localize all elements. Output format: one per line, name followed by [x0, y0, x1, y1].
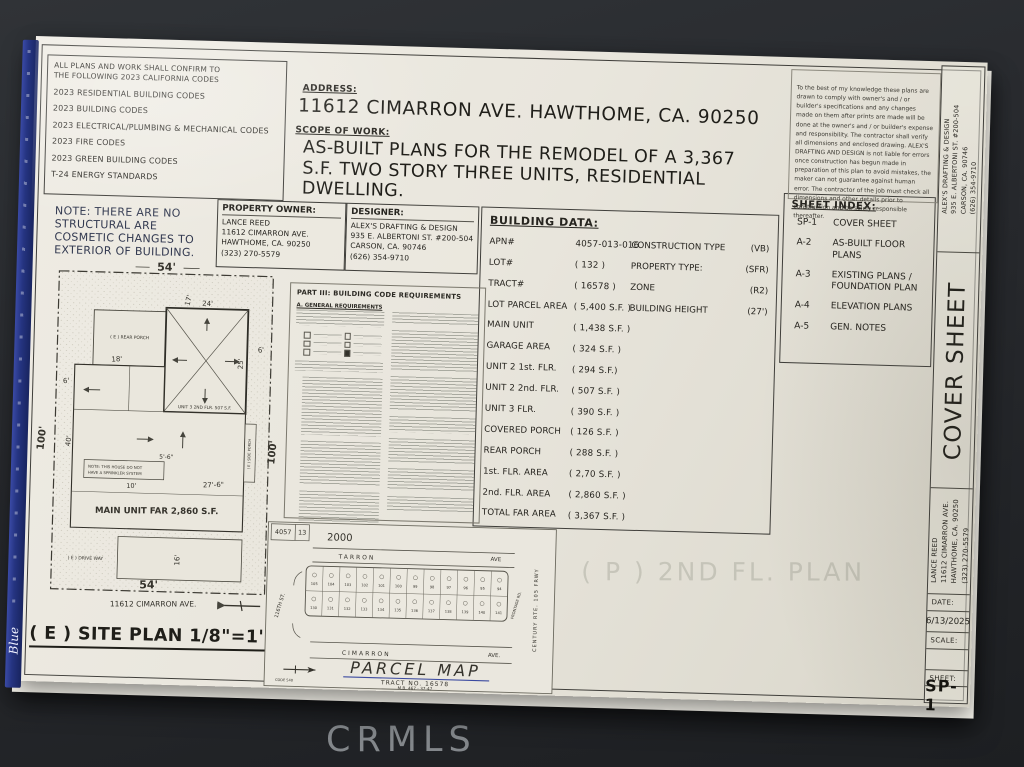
fine-print-lines	[387, 496, 473, 512]
code-item: 2023 RESIDENTIAL BUILDING CODES	[53, 87, 279, 102]
site-plan-drawing: 54' 17' ( E ) REAR PORCH 18' 24' 25' UNI…	[28, 258, 286, 617]
fine-print-column	[291, 309, 385, 513]
bleed-through-text: ( P ) 2ND FL. PLAN	[581, 557, 865, 586]
sheet-index-item: A-5GEN. NOTES	[788, 321, 924, 336]
photo-background: CRMLS Blue ALL PLANS AND WORK SHALL CONF…	[0, 0, 1024, 767]
checkbox-checked	[344, 350, 351, 357]
designer-box: DESIGNER: ALEX'S DRAFTING & DESIGN 935 E…	[345, 203, 480, 275]
svg-text:94: 94	[497, 587, 502, 591]
designer-disclaimer-text: To the best of my knowledge these plans …	[788, 69, 942, 203]
building-data-title: BUILDING DATA:	[490, 214, 770, 235]
building-code-requirements-box: PART III: BUILDING CODE REQUIREMENTS A. …	[284, 282, 487, 523]
svg-text:102: 102	[361, 583, 368, 587]
fine-print-column	[387, 312, 479, 516]
checkbox	[344, 341, 351, 348]
svg-text:54': 54'	[157, 261, 176, 274]
svg-text:AVE.: AVE.	[488, 653, 501, 659]
svg-text:95: 95	[480, 587, 485, 591]
part3-title: PART III: BUILDING CODE REQUIREMENTS	[297, 288, 479, 301]
svg-text:MAIN UNIT FAR 2,860 S.F.: MAIN UNIT FAR 2,860 S.F.	[95, 506, 219, 517]
building-data-box: BUILDING DATA: APN#4057-013-016 LOT#( 13…	[472, 207, 779, 535]
sheet-index-item: A-3EXISTING PLANS / FOUNDATION PLAN	[789, 269, 926, 295]
fine-print-lines	[301, 376, 383, 436]
fine-print-lines	[392, 312, 478, 326]
svg-text:137: 137	[428, 609, 435, 613]
checkbox-row	[304, 332, 384, 341]
sheet-index-item: A-4ELEVATION PLANS	[789, 300, 925, 315]
fine-print-lines	[389, 416, 475, 434]
code-item: 2023 FIRE CODES	[52, 137, 278, 152]
fine-print-lines	[300, 440, 381, 486]
code-item: 2023 GREEN BUILDING CODES	[51, 153, 277, 168]
fine-print-lines	[391, 330, 478, 372]
svg-text:136: 136	[411, 609, 419, 613]
date-label: DATE:	[927, 594, 969, 612]
svg-text:( E ) REAR PORCH: ( E ) REAR PORCH	[110, 334, 149, 341]
svg-text:98: 98	[430, 585, 435, 589]
scale-label: SCALE:	[926, 632, 968, 650]
svg-text:138: 138	[445, 610, 453, 614]
svg-text:27'-6": 27'-6"	[203, 481, 224, 490]
fine-print-lines	[390, 376, 477, 412]
sheet-index-item: A-2AS-BUILT FLOOR PLANS	[790, 237, 927, 263]
property-owner-box: PROPERTY OWNER: LANCE REED 11612 CIMARRO…	[216, 199, 347, 271]
fine-print-lines	[387, 468, 474, 492]
svg-text:132: 132	[344, 607, 351, 611]
fine-print-lines	[295, 360, 383, 372]
svg-text:97: 97	[446, 586, 451, 590]
svg-text:105: 105	[311, 582, 318, 586]
date-value: 6/13/2025	[927, 611, 970, 633]
svg-text:TARRON: TARRON	[337, 554, 375, 562]
codes-intro: ALL PLANS AND WORK SHALL CONFIRM TO THE …	[54, 61, 280, 87]
svg-text:100: 100	[395, 584, 403, 588]
svg-text:13: 13	[298, 529, 307, 537]
svg-text:100': 100'	[35, 426, 49, 451]
checkbox	[304, 332, 311, 339]
svg-text:135: 135	[394, 608, 401, 612]
sheet-number: SP-1	[925, 686, 967, 704]
svg-text:18': 18'	[111, 355, 122, 363]
scale-value	[926, 649, 969, 671]
address-label: ADDRESS:	[302, 83, 357, 95]
svg-text:6': 6'	[257, 346, 264, 355]
svg-text:134: 134	[377, 608, 385, 612]
svg-text:131: 131	[327, 606, 334, 610]
svg-text:11612 CIMARRON AVE.: 11612 CIMARRON AVE.	[110, 599, 197, 608]
structural-note: NOTE: THERE ARE NO STRUCTURAL ARE COSMET…	[54, 204, 235, 260]
checkbox-row	[303, 340, 383, 349]
svg-text:6': 6'	[63, 377, 70, 385]
checkbox	[344, 333, 351, 340]
svg-text:133: 133	[361, 607, 368, 611]
svg-text:4057: 4057	[275, 528, 292, 536]
svg-text:99: 99	[413, 585, 418, 589]
svg-text:25': 25'	[237, 358, 245, 369]
svg-text:141: 141	[495, 611, 502, 615]
code-item: T-24 ENERGY STANDARDS	[51, 170, 277, 185]
svg-text:10': 10'	[126, 482, 136, 490]
svg-text:130: 130	[310, 606, 318, 610]
watermark-crmls: CRMLS	[326, 720, 477, 760]
svg-text:2000: 2000	[327, 532, 353, 544]
code-item: 2023 BUILDING CODES	[53, 104, 279, 119]
checkbox	[303, 340, 310, 347]
property-owner-details: LANCE REED 11612 CIMARRON AVE. HAWTHOME,…	[221, 217, 341, 261]
svg-text:( E ) DRIVE WAY: ( E ) DRIVE WAY	[68, 555, 104, 562]
fine-print-lines	[388, 438, 475, 464]
parcel-map-drawing: 4057 13 2000 TARRON AVE 116TH ST. 105130…	[263, 521, 558, 695]
svg-text:CODE 540: CODE 540	[275, 678, 293, 682]
code-item: 2023 ELECTRICAL/PLUMBING & MECHANICAL CO…	[52, 120, 278, 135]
property-owner-label: PROPERTY OWNER:	[222, 203, 341, 218]
svg-text:40': 40'	[64, 435, 73, 447]
svg-text:140: 140	[478, 611, 486, 615]
svg-text:54': 54'	[139, 578, 158, 591]
svg-text:24': 24'	[202, 300, 213, 308]
title-block-designer: ALEX'S DRAFTING & DESIGN 935 E. ALBERTON…	[937, 66, 984, 253]
codes-box: ALL PLANS AND WORK SHALL CONFIRM TO THE …	[44, 54, 288, 201]
svg-text:104: 104	[328, 582, 336, 586]
svg-text:101: 101	[378, 584, 385, 588]
svg-text:CIMARRON: CIMARRON	[342, 650, 391, 658]
svg-text:139: 139	[462, 610, 470, 614]
svg-text:103: 103	[344, 583, 351, 587]
site-plan-title: ( E ) SITE PLAN 1/8"=1'-0"	[29, 623, 294, 652]
cover-sheet-paper: Blue ALL PLANS AND WORK SHALL CONFIRM TO…	[18, 36, 988, 707]
table-row: BUILDING HEIGHT(27')	[629, 298, 768, 323]
svg-text:M.B. 467 - 37-47: M.B. 467 - 37-47	[397, 685, 432, 691]
checkbox-row	[303, 349, 383, 358]
checkbox	[303, 349, 310, 356]
fine-print-lines	[299, 490, 380, 522]
designer-details: ALEX'S DRAFTING & DESIGN 935 E. ALBERTON…	[350, 221, 474, 265]
svg-text:5'-6": 5'-6"	[159, 454, 174, 461]
title-block-owner: LANCE REED 11612 CIMARRON AVE. HAWTHOME,…	[928, 488, 973, 595]
svg-text:AVE: AVE	[490, 557, 501, 563]
designer-label: DESIGNER:	[351, 207, 474, 222]
building-data-right-rows: CONSTRUCTION TYPE(VB) PROPERTY TYPE:(SFR…	[629, 236, 769, 323]
svg-text:100': 100'	[266, 440, 280, 465]
svg-text:16': 16'	[173, 555, 181, 566]
svg-text:96: 96	[463, 586, 468, 590]
scope-of-work-text: AS-BUILT PLANS FOR THE REMODEL OF A 3,36…	[302, 138, 736, 212]
fine-print-lines	[296, 309, 384, 327]
binding-logo: Blue	[6, 627, 21, 655]
title-block-sheet-title: COVER SHEET	[931, 252, 980, 489]
